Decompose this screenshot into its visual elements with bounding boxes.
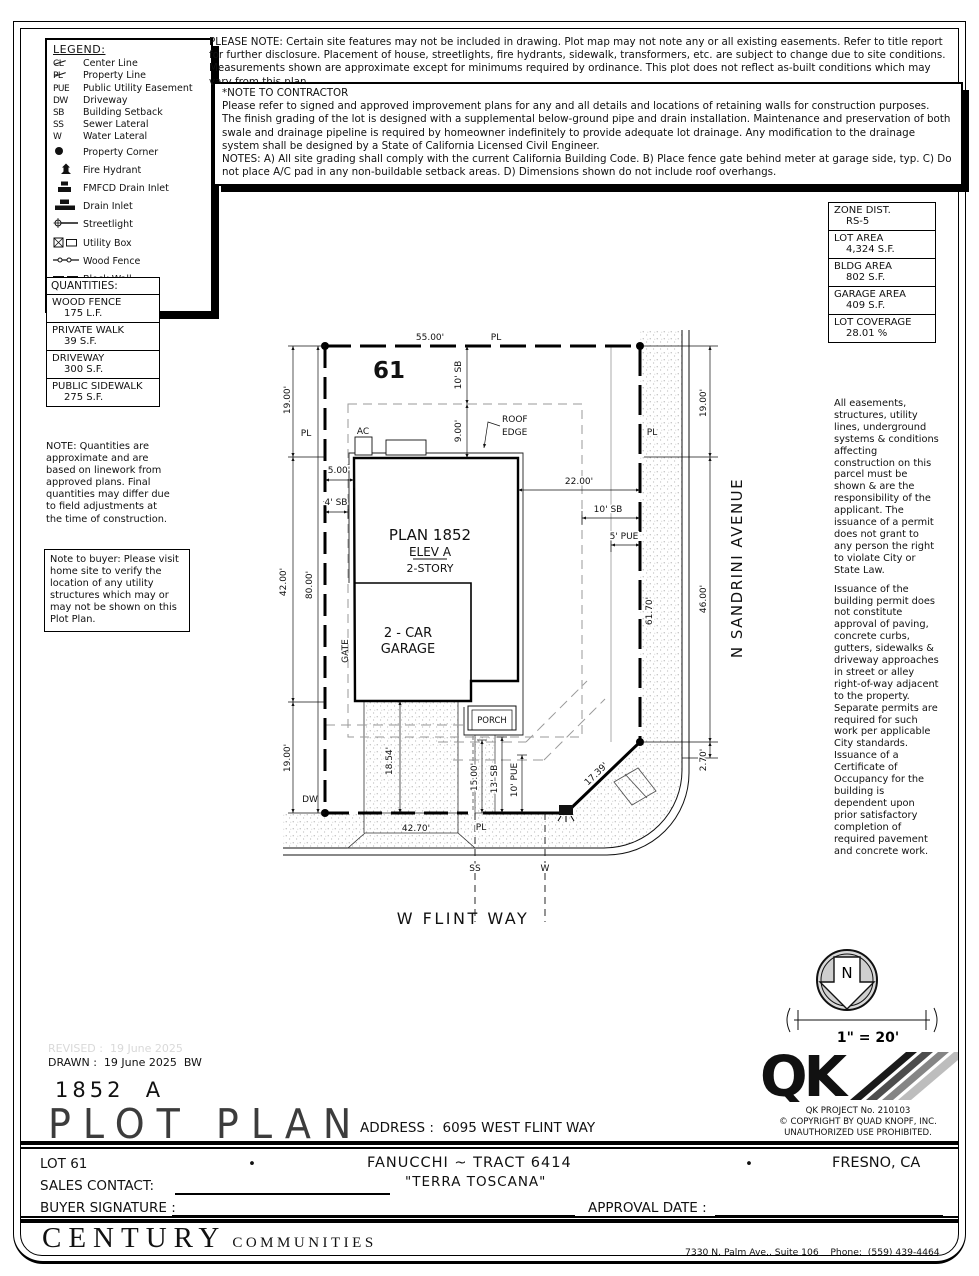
sales-contact-label: SALES CONTACT: <box>40 1178 154 1194</box>
pl-label-right: PL <box>647 428 657 438</box>
streetlight-icon <box>53 216 83 234</box>
permit-note-p2: Issuance of the building permit does not… <box>834 584 939 858</box>
legend-row: Wood Fence <box>53 253 207 271</box>
builder-name: CENTURY <box>42 1222 226 1254</box>
please-note-text: PLEASE NOTE: Certain site features may n… <box>209 36 955 89</box>
zone-cell: ZONE DIST.RS-5 <box>829 203 935 231</box>
dim-13sb: 13' SB <box>490 765 500 794</box>
drain-inlet-icon <box>53 198 83 216</box>
wood-fence-icon <box>53 253 83 271</box>
pl-label-top: PL <box>491 333 501 343</box>
water-symbol: W <box>53 131 83 143</box>
dim-22: 22.00' <box>565 477 593 487</box>
dim-6170: 61.70' <box>645 597 655 625</box>
permit-note-p1: All easements, structures, utility lines… <box>834 398 939 577</box>
footer-rule-thin <box>21 1216 958 1218</box>
story-label: 2-STORY <box>407 562 454 575</box>
quantities-table: QUANTITIES: WOOD FENCE175 L.F. PRIVATE W… <box>46 277 160 407</box>
quantities-title: QUANTITIES: <box>47 278 159 295</box>
zone-cell: GARAGE AREA409 S.F. <box>829 287 935 315</box>
legend-row: Streetlight <box>53 216 207 234</box>
dim-46: 46.00' <box>699 585 709 613</box>
quantity-row: WOOD FENCE175 L.F. <box>47 295 159 323</box>
north-letter: N <box>841 964 852 982</box>
ac-label: AC <box>357 427 369 437</box>
street-flint-way: W FLINT WAY <box>397 909 530 928</box>
plan-name: PLAN 1852 <box>389 526 471 544</box>
property-corner-dot <box>636 342 644 350</box>
legend-row: SSSewer Lateral <box>53 119 207 131</box>
zone-cell: LOT COVERAGE28.01 % <box>829 315 935 342</box>
qk-logo: QK <box>758 1048 958 1102</box>
garage-label-1: 2 - CAR <box>384 626 432 641</box>
dim-19-left-bottom: 19.00' <box>283 744 293 772</box>
legend-row: Property Corner <box>53 144 207 162</box>
dim-10sb-right: 10' SB <box>594 505 623 515</box>
scale-label: 1" = 20' <box>837 1030 899 1044</box>
plot-plan-sheet: { "legend": { "title": "LEGEND:", "items… <box>0 0 979 1276</box>
roof-edge-label-1: ROOF <box>502 415 528 425</box>
porch-label: PORCH <box>477 716 507 726</box>
legend-row: DWDriveway <box>53 95 207 107</box>
footer-city: FRESNO, CA <box>832 1155 920 1171</box>
utility-box-icon <box>53 235 83 253</box>
footer-tract: FANUCCHI ~ TRACT 6414 <box>367 1155 572 1171</box>
dw-label: DW <box>302 795 318 805</box>
ac-pad <box>355 437 372 455</box>
center-line-symbol: CL <box>53 58 83 70</box>
permit-notes: All easements, structures, utility lines… <box>834 398 939 857</box>
zone-cell: LOT AREA4,324 S.F. <box>829 231 935 259</box>
dim-55: 55.00' <box>416 333 444 343</box>
property-corner-dot <box>636 738 644 746</box>
zone-cell: BLDG AREA802 S.F. <box>829 259 935 287</box>
legend-row: CLCenter Line <box>53 58 207 70</box>
approval-date-line[interactable] <box>715 1201 943 1217</box>
dim-9: 9.00' <box>454 420 464 443</box>
legend-title: LEGEND: <box>53 44 207 56</box>
footer-community: "TERRA TOSCANA" <box>405 1174 546 1190</box>
buyer-signature-line[interactable] <box>172 1201 575 1217</box>
dim-1854: 18.54' <box>385 747 395 775</box>
legend-row: Utility Box <box>53 235 207 253</box>
contractor-note-p3: NOTES: A) All site grading shall comply … <box>222 153 954 179</box>
footer-bullet-2: • <box>745 1156 753 1172</box>
north-arrow-scale: N 1" = 20' <box>782 948 942 1044</box>
drawn-date: DRAWN : 19 June 2025 BW <box>48 1056 202 1069</box>
dim-15: 15.00' <box>470 763 480 791</box>
contractor-note-box: *NOTE TO CONTRACTOR Please refer to sign… <box>213 82 963 186</box>
dim-5pue: 5' PUE <box>610 532 639 542</box>
pl-label-left: PL <box>301 429 311 439</box>
driveway-symbol: DW <box>53 95 83 107</box>
dim-42: 42.00' <box>279 568 289 596</box>
dim-4sb: 4' SB <box>325 498 348 508</box>
fmfcd-drain-inlet-icon <box>53 180 83 198</box>
quantity-row: PRIVATE WALK39 S.F. <box>47 323 159 351</box>
patio-pad <box>386 440 426 455</box>
footer-lot: LOT 61 <box>40 1156 87 1172</box>
property-line-symbol: PL <box>53 70 83 82</box>
legend-row: SBBuilding Setback <box>53 107 207 119</box>
revised-date: REVISED : 19 June 2025 <box>48 1042 183 1055</box>
divider-rule-thin <box>21 1147 958 1149</box>
fire-hydrant-icon <box>53 162 83 180</box>
divider-rule <box>21 1141 958 1145</box>
dim-19-right: 19.00' <box>699 389 709 417</box>
builder-logo: CENTURYCOMMUNITIES <box>42 1222 377 1255</box>
water-label: W <box>541 864 550 874</box>
qk-copyright: © COPYRIGHT BY QUAD KNOPF, INC. <box>758 1117 958 1128</box>
contractor-note-p2: The finish grading of the lot is designe… <box>222 113 954 153</box>
legend-row: FMFCD Drain Inlet <box>53 180 207 198</box>
qk-unauthorized: UNAUTHORIZED USE PROHIBITED. <box>758 1128 958 1139</box>
zone-info-table: ZONE DIST.RS-5 LOT AREA4,324 S.F. BLDG A… <box>828 202 936 343</box>
contractor-note-p1: Please refer to signed and approved impr… <box>222 100 954 113</box>
quantities-note: NOTE: Quantities are approximate and are… <box>46 441 172 526</box>
garage-label-2: GARAGE <box>381 642 435 657</box>
drain-inlet-symbol <box>559 805 573 815</box>
svg-text:QK: QK <box>760 1048 850 1102</box>
dim-4270: 42.70' <box>402 824 430 834</box>
gate-label: GATE <box>341 639 351 663</box>
dim-270: 2.70' <box>699 749 709 772</box>
legend-row: Drain Inlet <box>53 198 207 216</box>
quantity-row: PUBLIC SIDEWALK275 S.F. <box>47 379 159 406</box>
contractor-note-title: *NOTE TO CONTRACTOR <box>222 87 954 100</box>
dim-80: 80.00' <box>305 571 315 599</box>
plan-number: 1852 A <box>55 1078 164 1102</box>
setback-symbol: SB <box>53 107 83 119</box>
pl-label-bottom: PL <box>476 823 486 833</box>
builder-name-2: COMMUNITIES <box>232 1235 376 1251</box>
legend-row: WWater Lateral <box>53 131 207 143</box>
buyer-signature-label: BUYER SIGNATURE : <box>40 1200 176 1216</box>
address-line: ADDRESS : 6095 WEST FLINT WAY <box>360 1120 595 1136</box>
dim-5: 5.00' <box>328 466 351 476</box>
dim-10sb-top: 10' SB <box>454 361 464 390</box>
legend-row: PUEPublic Utility Easement <box>53 83 207 95</box>
buyer-note-box: Note to buyer: Please visit home site to… <box>44 549 190 632</box>
house-footprint <box>349 437 523 735</box>
site-plan-drawing: 61 55.00' PL 19.00' 42.00' 19.00' 80.00'… <box>278 330 756 930</box>
qk-logo-block: QK QK PROJECT No. 210103 © COPYRIGHT BY … <box>758 1048 958 1148</box>
roof-edge-label-2: EDGE <box>502 428 528 438</box>
legend-row: Fire Hydrant <box>53 162 207 180</box>
dim-10pue: 10' PUE <box>510 762 520 797</box>
sewer-label: SS <box>469 864 481 874</box>
dim-19-left-top: 19.00' <box>283 386 293 414</box>
quantity-row: DRIVEWAY300 S.F. <box>47 351 159 379</box>
pue-symbol: PUE <box>53 83 83 95</box>
elevation-label: ELEV A <box>409 545 452 559</box>
sewer-symbol: SS <box>53 119 83 131</box>
roof-edge-leader <box>484 422 500 448</box>
street-sandrini-ave: N SANDRINI AVENUE <box>728 478 746 658</box>
property-corner-icon <box>53 144 83 162</box>
legend-row: PLProperty Line <box>53 70 207 82</box>
footer-bullet-1: • <box>248 1156 256 1172</box>
lot-number: 61 <box>373 358 405 384</box>
sales-contact-line[interactable] <box>175 1179 390 1195</box>
approval-date-label: APPROVAL DATE : <box>588 1200 707 1216</box>
qk-project-number: QK PROJECT No. 210103 <box>758 1106 958 1117</box>
legend-box: LEGEND: CLCenter Line PLProperty Line PU… <box>45 38 213 313</box>
builder-address: 7330 N. Palm Ave., Suite 106 Phone: (559… <box>685 1223 940 1276</box>
house-outline <box>354 458 518 701</box>
